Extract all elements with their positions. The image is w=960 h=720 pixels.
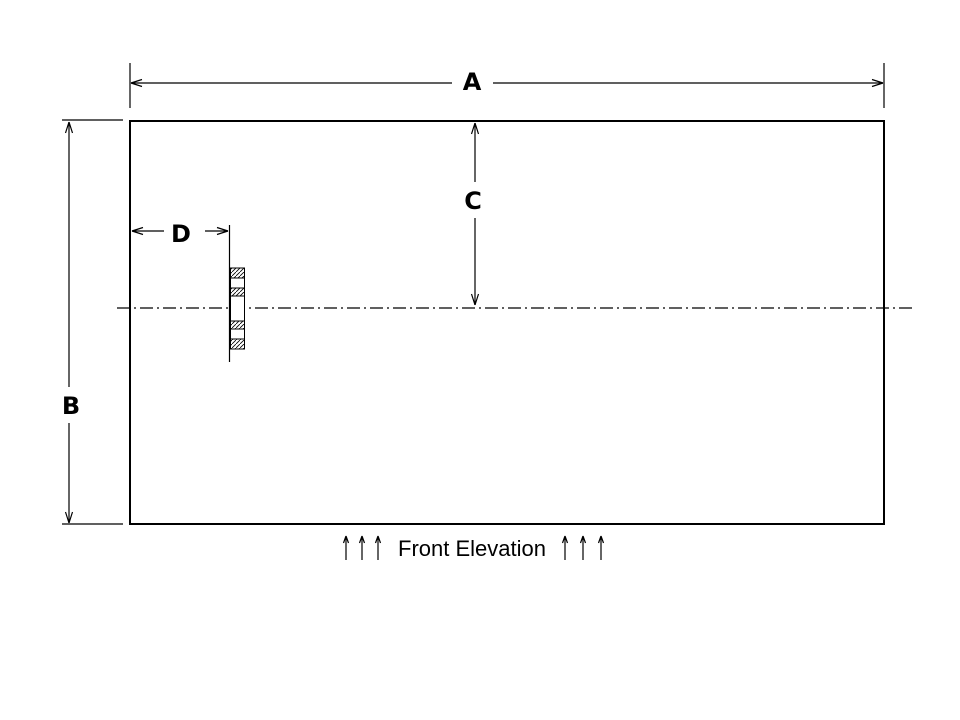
elevation-drawing: A B C D Fro xyxy=(0,0,960,720)
dim-b-label: B xyxy=(62,392,80,420)
flange-hatch-band xyxy=(231,268,245,278)
dimension-b xyxy=(62,120,123,524)
nozzle-flange xyxy=(230,225,245,362)
dimension-a xyxy=(130,63,884,108)
up-arrow-icon xyxy=(581,536,586,560)
flow-arrows-left xyxy=(344,536,381,560)
flange-plain-band xyxy=(231,329,245,339)
view-caption: Front Elevation xyxy=(398,536,546,561)
up-arrow-icon xyxy=(344,536,349,560)
flange-hatch-band xyxy=(231,288,245,296)
elevation-drawing-canvas: A B C D Fro xyxy=(0,0,960,720)
flow-arrows-right xyxy=(563,536,604,560)
up-arrow-icon xyxy=(599,536,604,560)
flange-plain-band xyxy=(231,278,245,288)
dim-c-label: C xyxy=(464,187,482,215)
up-arrow-icon xyxy=(360,536,365,560)
flange-hatch-band xyxy=(231,321,245,329)
dim-d-label: D xyxy=(171,220,191,248)
dim-a-label: A xyxy=(463,68,482,96)
up-arrow-icon xyxy=(376,536,381,560)
up-arrow-icon xyxy=(563,536,568,560)
flange-hatch-band xyxy=(231,339,245,349)
flange-bore-band xyxy=(231,296,245,321)
